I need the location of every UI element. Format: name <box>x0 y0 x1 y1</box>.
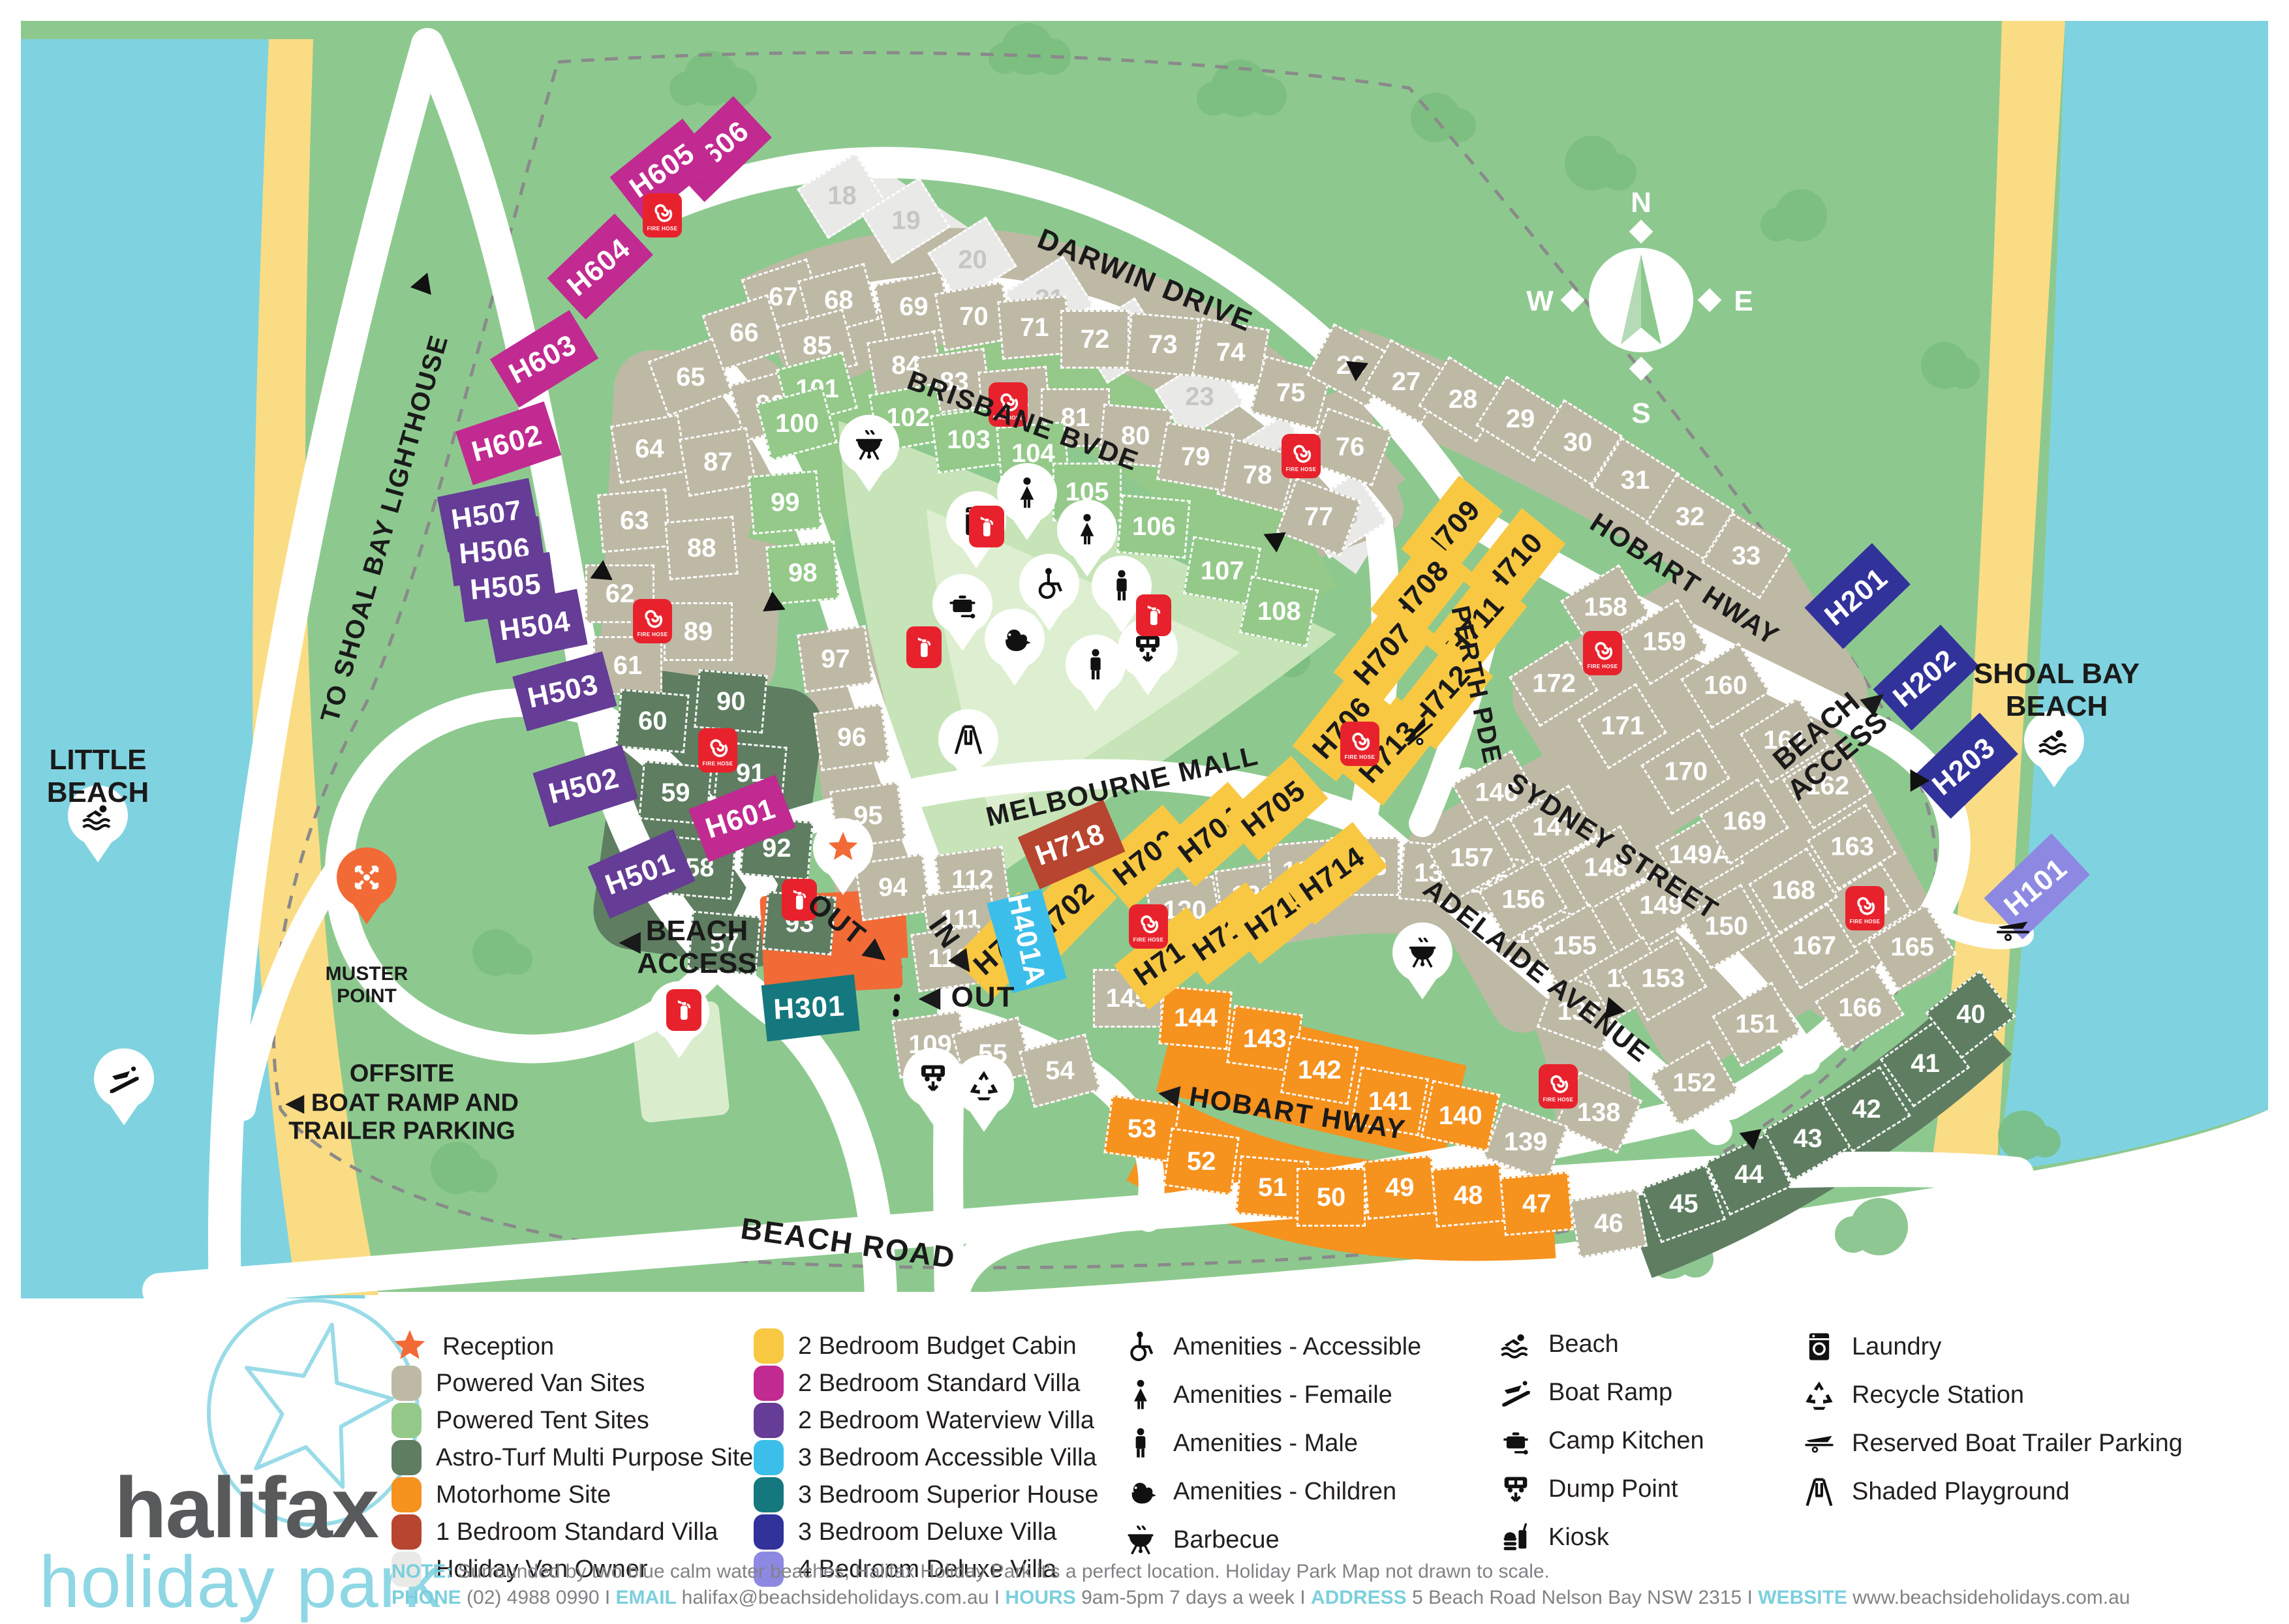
fire-hose-icon: FIRE HOSE <box>643 193 682 237</box>
legend-item: Powered Tent Sites <box>392 1403 649 1438</box>
swing-pin <box>938 709 998 786</box>
fire-hose-icon: FIRE HOSE <box>1129 904 1168 949</box>
site-64: 64 <box>610 414 688 483</box>
legend-item: 2 Bedroom Budget Cabin <box>754 1328 1077 1364</box>
site-97: 97 <box>797 625 873 693</box>
map-text: SHOAL BAY BEACH <box>1974 658 2140 723</box>
compass-w: W <box>1526 285 1554 317</box>
fire-hose-icon: FIRE HOSE <box>1282 434 1321 478</box>
contact-value: 5 Beach Road Nelson Bay NSW 2315 I <box>1412 1587 1758 1608</box>
legend-swatch <box>754 1440 784 1475</box>
road-label: ◀ OUT <box>919 981 1016 1014</box>
legend-label: Motorhome Site <box>436 1481 611 1509</box>
star-icon <box>825 831 861 866</box>
site-49: 49 <box>1362 1156 1436 1220</box>
legend-label: Boat Ramp <box>1548 1379 1672 1407</box>
legend-label: Astro-Turf Multi Purpose Site <box>436 1444 753 1472</box>
contact-label: PHONE <box>392 1587 467 1608</box>
site-60: 60 <box>615 689 689 754</box>
contact-label: WEBSITE <box>1758 1587 1852 1608</box>
contact-value: www.beachsideholidays.com.au <box>1852 1587 2130 1608</box>
trailer-icon <box>1988 911 2038 953</box>
muster-pin <box>337 848 397 925</box>
swim-icon <box>1498 1326 1534 1362</box>
bbq-icon <box>1122 1522 1159 1558</box>
legend-label: Kiosk <box>1548 1524 1609 1552</box>
male-icon <box>1122 1425 1159 1462</box>
legend-swatch <box>754 1514 784 1550</box>
female-pin <box>997 463 1057 540</box>
fire-extinguisher-icon <box>666 989 701 1031</box>
note-label: NOTE: <box>392 1561 452 1582</box>
legend-label: 1 Bedroom Standard Villa <box>436 1518 718 1546</box>
female-icon <box>1069 512 1105 547</box>
site-142: 142 <box>1280 1035 1359 1105</box>
legend-label: Beach <box>1548 1330 1619 1358</box>
male-pin <box>1066 635 1126 712</box>
legend-item: 3 Bedroom Accessible Villa <box>754 1440 1097 1475</box>
site-47: 47 <box>1499 1172 1573 1236</box>
legend-item: 1 Bedroom Standard Villa <box>392 1514 718 1550</box>
recycle-icon <box>966 1067 1002 1103</box>
legend-swatch <box>392 1440 422 1475</box>
contact-label: ADDRESS <box>1311 1587 1412 1608</box>
male-icon <box>1078 647 1113 682</box>
bbq-pin <box>839 415 899 492</box>
map-text: LITTLE BEACH <box>47 744 149 809</box>
compass-s: S <box>1631 397 1650 429</box>
legend-item: Shaded Playground <box>1801 1473 2070 1510</box>
note-text: Surrounded by two blue calm water beache… <box>452 1561 1550 1582</box>
site-89: 89 <box>664 602 733 661</box>
legend-label: Reserved Boat Trailer Parking <box>1852 1430 2183 1458</box>
contact-label: HOURS <box>1005 1587 1081 1608</box>
kitchen-icon <box>945 587 980 622</box>
fire-hose-icon: FIRE HOSE <box>1539 1064 1578 1109</box>
laundry-icon <box>1801 1328 1837 1365</box>
map-text: BEACH ACCESS <box>637 915 756 980</box>
legend-item: 2 Bedroom Standard Villa <box>754 1366 1080 1401</box>
villa-H301: H301 <box>758 974 861 1042</box>
fire-extinguisher-icon <box>1136 594 1171 636</box>
legend-item: Recycle Station <box>1801 1377 2024 1413</box>
legend-item: Dump Point <box>1498 1471 1678 1507</box>
legend-label: Amenities - Femaile <box>1173 1381 1392 1409</box>
fire-hose-icon: FIRE HOSE <box>1845 886 1884 930</box>
legend-swatch <box>754 1477 784 1512</box>
legend-item: 3 Bedroom Deluxe Villa <box>754 1514 1056 1550</box>
contact-value: (02) 4988 0990 I <box>467 1587 616 1608</box>
legend-swatch <box>392 1403 422 1438</box>
fire-extinguisher-icon <box>969 506 1004 547</box>
legend-item: 3 Bedroom Superior House <box>754 1477 1098 1512</box>
legend-item: Reserved Boat Trailer Parking <box>1801 1425 2183 1462</box>
legend-item: Amenities - Femaile <box>1122 1377 1392 1413</box>
note-line: NOTE: Surrounded by two blue calm water … <box>392 1561 1550 1583</box>
site-88: 88 <box>664 516 738 581</box>
legend-item: Reception <box>392 1328 554 1365</box>
legend-swatch <box>392 1477 422 1512</box>
legend-swatch <box>754 1403 784 1438</box>
map-text: MUSTER POINT <box>326 963 408 1007</box>
legend-item: Kiosk <box>1498 1519 1609 1555</box>
legend-item: Amenities - Accessible <box>1122 1328 1421 1365</box>
bbq-icon <box>852 427 887 463</box>
legend-item: 2 Bedroom Waterview Villa <box>754 1403 1094 1438</box>
wc-icon <box>1122 1328 1159 1365</box>
compass-e: E <box>1734 285 1753 317</box>
fire-hose-icon: FIRE HOSE <box>633 599 672 643</box>
kiosk-icon <box>1498 1519 1534 1555</box>
halifax-holiday-park-map: N S W E 1819202122232425676869707172 <box>0 0 2289 1618</box>
legend-label: Shaded Playground <box>1852 1478 2070 1506</box>
fire-hose-icon: FIRE HOSE <box>698 728 737 773</box>
legend-label: Recycle Station <box>1852 1381 2024 1409</box>
legend-swatch <box>392 1366 422 1401</box>
star-pin <box>813 818 873 895</box>
bbq-pin <box>1392 923 1452 1000</box>
legend-label: Amenities - Male <box>1173 1430 1358 1458</box>
site-79: 79 <box>1156 421 1235 491</box>
legend-label: 2 Bedroom Standard Villa <box>798 1370 1080 1398</box>
site-106: 106 <box>1116 495 1190 559</box>
site-72: 72 <box>1060 310 1129 369</box>
legend-label: Powered Van Sites <box>436 1370 645 1398</box>
duck-pin <box>985 609 1045 686</box>
site-50: 50 <box>1297 1168 1366 1227</box>
dump-icon <box>1498 1471 1534 1507</box>
site-46: 46 <box>1569 1188 1648 1258</box>
site-48: 48 <box>1431 1163 1505 1228</box>
swim-icon <box>2036 723 2072 758</box>
fire-extinguisher-icon <box>906 626 942 668</box>
legend-item: Barbecue <box>1122 1522 1280 1558</box>
legend-label: Dump Point <box>1548 1475 1678 1503</box>
site-63: 63 <box>597 489 671 553</box>
female-icon <box>1122 1377 1159 1413</box>
legend-label: Barbecue <box>1173 1526 1280 1554</box>
duck-icon <box>997 621 1032 656</box>
contact-label: EMAIL <box>616 1587 682 1608</box>
site-87: 87 <box>679 427 757 497</box>
fire-hose-icon: FIRE HOSE <box>1340 722 1379 766</box>
legend-item: Motorhome Site <box>392 1477 611 1512</box>
recycle-icon <box>1801 1377 1837 1413</box>
bbq-icon <box>1405 935 1440 970</box>
contact-value: halifax@beachsideholidays.com.au I <box>682 1587 1006 1608</box>
compass-n: N <box>1631 187 1651 219</box>
legend-label: 2 Bedroom Budget Cabin <box>798 1332 1077 1360</box>
legend-label: Reception <box>442 1333 554 1361</box>
kitchen-icon <box>1498 1422 1534 1459</box>
legend-label: Powered Tent Sites <box>436 1407 649 1435</box>
site-90: 90 <box>694 669 767 734</box>
fire-hose-icon: FIRE HOSE <box>1583 631 1622 675</box>
legend-swatch <box>754 1328 784 1364</box>
dump-icon <box>915 1060 951 1095</box>
boatramp-icon <box>1498 1374 1534 1411</box>
site-144: 144 <box>1158 986 1232 1050</box>
duck-icon <box>1122 1473 1159 1510</box>
legend-label: Laundry <box>1852 1333 1941 1361</box>
boatramp-icon <box>106 1061 142 1096</box>
legend-item: Amenities - Male <box>1122 1425 1358 1462</box>
male-icon <box>1104 568 1139 604</box>
legend-label: 3 Bedroom Deluxe Villa <box>798 1518 1056 1546</box>
legend-label: Amenities - Children <box>1173 1478 1396 1506</box>
swing-icon <box>1801 1473 1837 1510</box>
legend-label: 2 Bedroom Waterview Villa <box>798 1407 1094 1435</box>
logo-subtitle: holiday park <box>39 1540 441 1624</box>
star-icon <box>392 1328 428 1365</box>
map-text: ◀ <box>619 925 641 958</box>
map-text: OFFSITE ◀ BOAT RAMP AND TRAILER PARKING <box>285 1060 519 1146</box>
legend-swatch <box>754 1366 784 1401</box>
legend-item: Amenities - Children <box>1122 1473 1396 1510</box>
legend-item: Laundry <box>1801 1328 1941 1365</box>
site-52: 52 <box>1163 1127 1239 1195</box>
site-73: 73 <box>1126 313 1199 377</box>
legend-label: 3 Bedroom Superior House <box>798 1481 1098 1509</box>
female-icon <box>1009 476 1045 511</box>
site-99: 99 <box>748 470 822 535</box>
contact-value: 9am-5pm 7 days a week I <box>1081 1587 1311 1608</box>
legend-label: 3 Bedroom Accessible Villa <box>798 1444 1097 1472</box>
legend-item: Beach <box>1498 1326 1619 1362</box>
contact-line: PHONE (02) 4988 0990 I EMAIL halifax@bea… <box>392 1587 2130 1609</box>
swing-icon <box>951 722 986 757</box>
legend-item: Boat Ramp <box>1498 1374 1672 1411</box>
legend-item: Camp Kitchen <box>1498 1422 1704 1459</box>
legend-swatch <box>392 1514 422 1550</box>
legend-label: Amenities - Accessible <box>1173 1333 1421 1361</box>
boatramp-pin <box>94 1049 154 1126</box>
wc-icon <box>1032 566 1067 602</box>
legend-item: Astro-Turf Multi Purpose Site <box>392 1440 753 1475</box>
legend-item: Powered Van Sites <box>392 1366 645 1401</box>
recycle-pin <box>954 1055 1014 1132</box>
site-96: 96 <box>813 703 889 771</box>
trailer-icon <box>1801 1425 1837 1462</box>
legend-label: Camp Kitchen <box>1548 1427 1704 1455</box>
muster-icon <box>349 860 384 895</box>
